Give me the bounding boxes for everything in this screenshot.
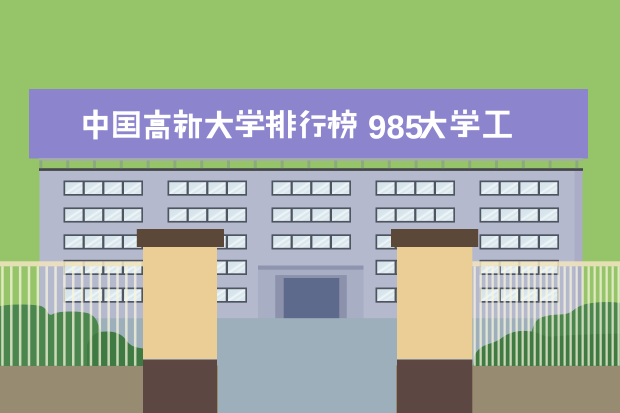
svg-text:985: 985 <box>368 109 423 146</box>
